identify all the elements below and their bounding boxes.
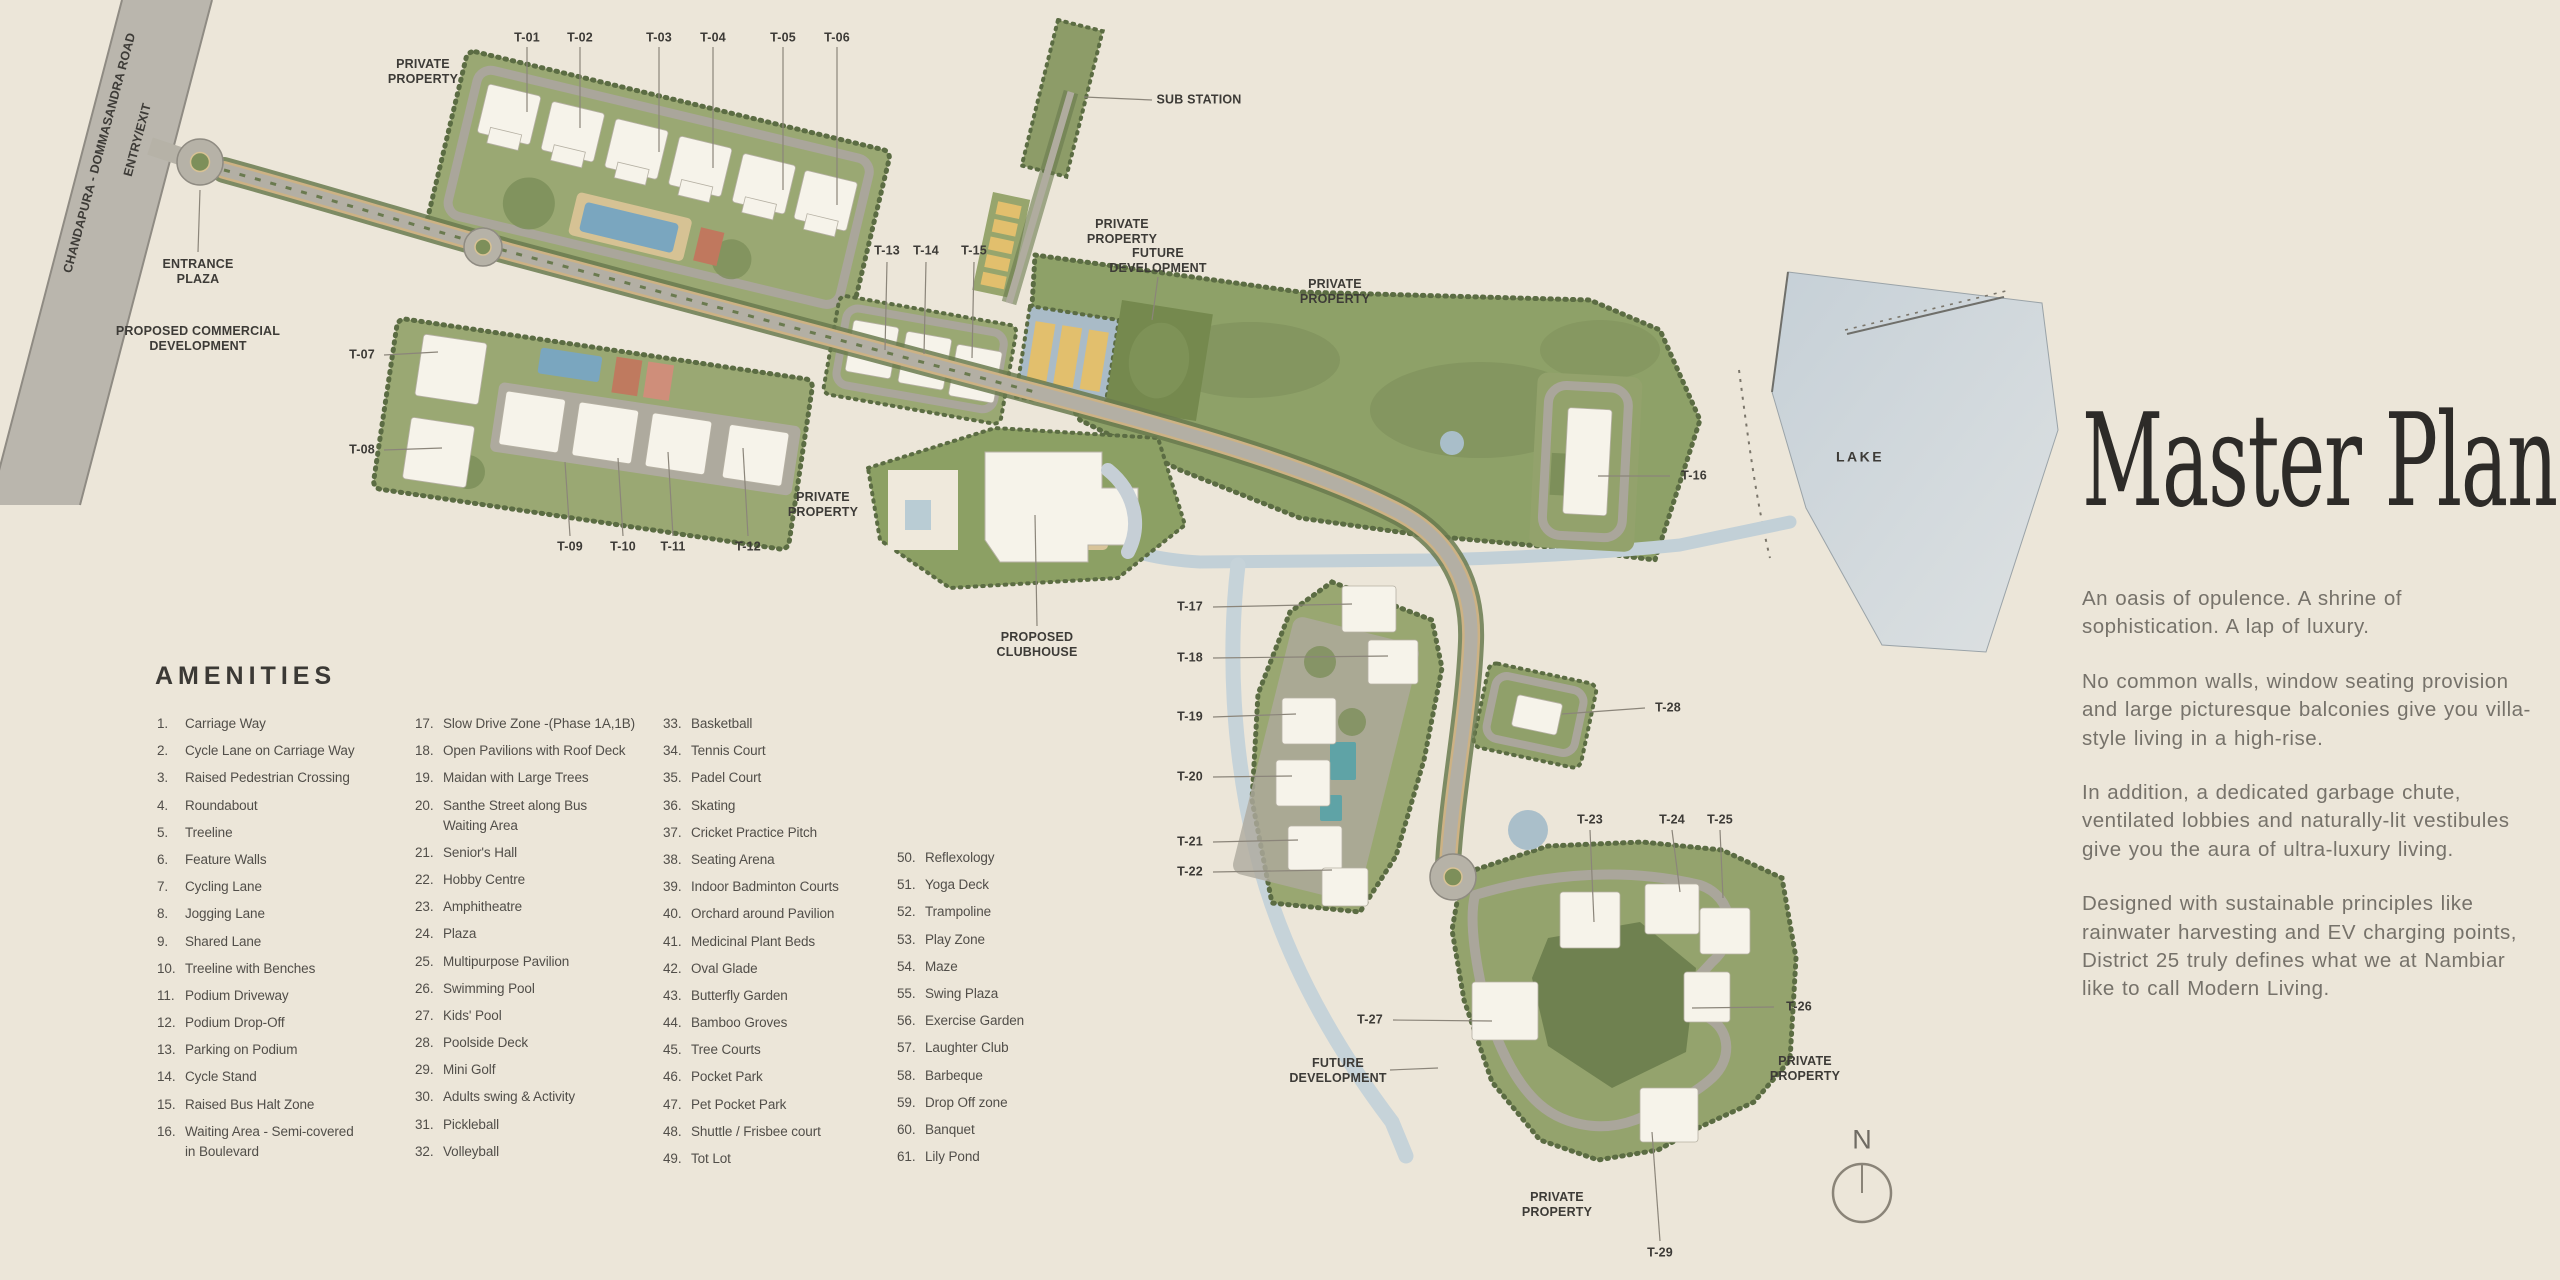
amenity-label: Senior's Hall <box>443 843 517 863</box>
amenity-number: 60. <box>897 1120 925 1140</box>
area-label-future-development-1: FUTURE DEVELOPMENT <box>1109 246 1206 277</box>
amenity-number: 34. <box>663 741 691 761</box>
amenity-item: 6.Feature Walls <box>157 850 422 870</box>
area-label-private-property-1: PRIVATE PROPERTY <box>388 57 458 88</box>
amenity-number: 10. <box>157 959 185 979</box>
amenity-number: 3. <box>157 768 185 788</box>
amenity-item: 61.Lily Pond <box>897 1147 1162 1167</box>
amenity-label: Cricket Practice Pitch <box>691 823 817 843</box>
amenity-number: 28. <box>415 1033 443 1053</box>
amenity-number: 19. <box>415 768 443 788</box>
amenity-label: Mini Golf <box>443 1060 495 1080</box>
amenity-number: 35. <box>663 768 691 788</box>
amenity-number: 15. <box>157 1095 185 1115</box>
amenity-item: 25.Multipurpose Pavilion <box>415 952 680 972</box>
amenity-label: Treeline <box>185 823 232 843</box>
amenities-column-1: 1.Carriage Way2.Cycle Lane on Carriage W… <box>157 714 422 1169</box>
amenity-item: 7.Cycling Lane <box>157 877 422 897</box>
amenity-number: 6. <box>157 850 185 870</box>
tower-label-t-23: T-23 <box>1577 812 1603 827</box>
amenity-label: Open Pavilions with Roof Deck <box>443 741 625 761</box>
amenity-label: Maidan with Large Trees <box>443 768 589 788</box>
amenity-item: 43.Butterfly Garden <box>663 986 928 1006</box>
amenity-number: 42. <box>663 959 691 979</box>
amenities-title: AMENITIES <box>155 664 336 689</box>
amenity-label: Basketball <box>691 714 752 734</box>
tower-label-t-18: T-18 <box>1177 650 1203 665</box>
tower-label-t-13: T-13 <box>874 243 900 258</box>
amenity-number: 30. <box>415 1087 443 1107</box>
amenity-item: 14.Cycle Stand <box>157 1067 422 1087</box>
amenity-item: 2.Cycle Lane on Carriage Way <box>157 741 422 761</box>
amenity-label: Medicinal Plant Beds <box>691 932 815 952</box>
amenity-item: 60.Banquet <box>897 1120 1162 1140</box>
description-paragraph-1: An oasis of opulence. A shrine of sophis… <box>2082 585 2540 642</box>
amenity-number: 32. <box>415 1142 443 1162</box>
amenity-item: 53.Play Zone <box>897 930 1162 950</box>
amenity-number: 39. <box>663 877 691 897</box>
description-paragraph-2: No common walls, window seating provisio… <box>2082 668 2540 753</box>
amenity-label: Tennis Court <box>691 741 766 761</box>
amenity-number: 13. <box>157 1040 185 1060</box>
amenity-number: 4. <box>157 796 185 816</box>
amenity-item: 26.Swimming Pool <box>415 979 680 999</box>
tower-label-t-21: T-21 <box>1177 834 1203 849</box>
amenity-label: Adults swing & Activity <box>443 1087 575 1107</box>
tower-label-t-04: T-04 <box>700 30 726 45</box>
amenity-number: 58. <box>897 1066 925 1086</box>
amenity-item: 59.Drop Off zone <box>897 1093 1162 1113</box>
page-title: Master Plan <box>2082 398 2557 526</box>
amenity-item: 35.Padel Court <box>663 768 928 788</box>
amenity-number: 33. <box>663 714 691 734</box>
amenity-label: Tree Courts <box>691 1040 761 1060</box>
amenity-item: 47.Pet Pocket Park <box>663 1095 928 1115</box>
amenity-number: 54. <box>897 957 925 977</box>
amenity-item: 24.Plaza <box>415 924 680 944</box>
tower-label-t-02: T-02 <box>567 30 593 45</box>
area-label-private-property-4: PRIVATE PROPERTY <box>788 490 858 521</box>
tower-label-t-27: T-27 <box>1357 1012 1383 1027</box>
amenity-number: 11. <box>157 986 185 1006</box>
amenity-number: 43. <box>663 986 691 1006</box>
compass-north-label: N <box>1852 1127 1872 1154</box>
amenity-item: 57.Laughter Club <box>897 1038 1162 1058</box>
tower-label-t-15: T-15 <box>961 243 987 258</box>
amenity-label: Parking on Podium <box>185 1040 297 1060</box>
tower-label-t-11: T-11 <box>660 539 685 554</box>
tower-label-t-24: T-24 <box>1659 812 1685 827</box>
amenity-item: 50.Reflexology <box>897 848 1162 868</box>
amenity-label: Seating Arena <box>691 850 775 870</box>
amenity-item: 52.Trampoline <box>897 902 1162 922</box>
amenity-item: 37.Cricket Practice Pitch <box>663 823 928 843</box>
amenity-label: Kids' Pool <box>443 1006 502 1026</box>
amenity-item: 28.Poolside Deck <box>415 1033 680 1053</box>
amenity-label: Swimming Pool <box>443 979 535 999</box>
amenity-item: 55.Swing Plaza <box>897 984 1162 1004</box>
amenity-number: 41. <box>663 932 691 952</box>
area-label-future-development-2: FUTURE DEVELOPMENT <box>1289 1056 1386 1087</box>
amenity-item: 51.Yoga Deck <box>897 875 1162 895</box>
amenity-number: 20. <box>415 796 443 836</box>
amenity-item: 58.Barbeque <box>897 1066 1162 1086</box>
amenity-label: Tot Lot <box>691 1149 731 1169</box>
amenity-label: Slow Drive Zone -(Phase 1A,1B) <box>443 714 635 734</box>
amenity-label: Feature Walls <box>185 850 266 870</box>
amenity-item: 1.Carriage Way <box>157 714 422 734</box>
amenity-number: 51. <box>897 875 925 895</box>
amenity-label: Butterfly Garden <box>691 986 788 1006</box>
amenity-number: 23. <box>415 897 443 917</box>
amenity-label: Drop Off zone <box>925 1093 1008 1113</box>
tower-label-t-01: T-01 <box>514 30 540 45</box>
amenity-item: 49.Tot Lot <box>663 1149 928 1169</box>
amenity-label: Volleyball <box>443 1142 499 1162</box>
amenity-item: 17.Slow Drive Zone -(Phase 1A,1B) <box>415 714 680 734</box>
amenity-item: 20.Santhe Street along Bus Waiting Area <box>415 796 680 836</box>
amenity-label: Multipurpose Pavilion <box>443 952 569 972</box>
amenity-label: Padel Court <box>691 768 761 788</box>
tower-label-t-16: T-16 <box>1681 468 1707 483</box>
amenity-number: 40. <box>663 904 691 924</box>
amenity-label: Reflexology <box>925 848 994 868</box>
amenity-label: Pocket Park <box>691 1067 763 1087</box>
amenity-number: 57. <box>897 1038 925 1058</box>
amenity-label: Cycle Stand <box>185 1067 257 1087</box>
amenity-number: 49. <box>663 1149 691 1169</box>
amenity-item: 4.Roundabout <box>157 796 422 816</box>
amenity-item: 46.Pocket Park <box>663 1067 928 1087</box>
amenity-item: 36.Skating <box>663 796 928 816</box>
amenity-label: Pet Pocket Park <box>691 1095 786 1115</box>
amenity-label: Play Zone <box>925 930 985 950</box>
tower-label-t-08: T-08 <box>349 442 375 457</box>
amenity-item: 39.Indoor Badminton Courts <box>663 877 928 897</box>
amenity-item: 27.Kids' Pool <box>415 1006 680 1026</box>
amenity-label: Poolside Deck <box>443 1033 528 1053</box>
amenity-label: Orchard around Pavilion <box>691 904 834 924</box>
amenity-label: Bamboo Groves <box>691 1013 787 1033</box>
tower-label-t-07: T-07 <box>349 347 375 362</box>
amenity-label: Cycle Lane on Carriage Way <box>185 741 354 761</box>
amenity-label: Banquet <box>925 1120 975 1140</box>
amenity-item: 38.Seating Arena <box>663 850 928 870</box>
description-paragraph-4: Designed with sustainable principles lik… <box>2082 890 2540 1004</box>
tower-label-t-14: T-14 <box>913 243 939 258</box>
amenities-column-2: 17.Slow Drive Zone -(Phase 1A,1B)18.Open… <box>415 714 680 1169</box>
amenity-item: 32.Volleyball <box>415 1142 680 1162</box>
amenity-label: Yoga Deck <box>925 875 989 895</box>
amenity-number: 21. <box>415 843 443 863</box>
amenity-number: 61. <box>897 1147 925 1167</box>
amenity-item: 54.Maze <box>897 957 1162 977</box>
area-label-sub-station: SUB STATION <box>1156 92 1241 107</box>
amenity-label: Swing Plaza <box>925 984 998 1004</box>
amenity-item: 23.Amphitheatre <box>415 897 680 917</box>
amenity-label: Shared Lane <box>185 932 261 952</box>
amenity-label: Exercise Garden <box>925 1011 1024 1031</box>
amenity-item: 45.Tree Courts <box>663 1040 928 1060</box>
amenity-label: Roundabout <box>185 796 258 816</box>
amenity-number: 24. <box>415 924 443 944</box>
amenity-item: 5.Treeline <box>157 823 422 843</box>
amenity-label: Raised Pedestrian Crossing <box>185 768 350 788</box>
amenity-item: 41.Medicinal Plant Beds <box>663 932 928 952</box>
tower-label-t-29: T-29 <box>1647 1245 1673 1260</box>
amenity-item: 13.Parking on Podium <box>157 1040 422 1060</box>
area-label-private-property-6: PRIVATE PROPERTY <box>1522 1190 1592 1221</box>
amenity-label: Amphitheatre <box>443 897 522 917</box>
amenity-label: Shuttle / Frisbee court <box>691 1122 821 1142</box>
amenity-item: 44.Bamboo Groves <box>663 1013 928 1033</box>
tower-label-t-03: T-03 <box>646 30 672 45</box>
amenity-label: Raised Bus Halt Zone <box>185 1095 314 1115</box>
amenity-item: 40.Orchard around Pavilion <box>663 904 928 924</box>
amenity-label: Indoor Badminton Courts <box>691 877 839 897</box>
master-plan-page: T-01T-02T-03T-04T-05T-06T-07T-08T-09T-10… <box>0 0 2560 1280</box>
amenities-column-4: 50.Reflexology51.Yoga Deck52.Trampoline5… <box>897 848 1162 1174</box>
area-label-entry-exit: ENTRY/EXIT <box>121 102 155 179</box>
tower-label-t-09: T-09 <box>557 539 583 554</box>
amenity-number: 12. <box>157 1013 185 1033</box>
amenity-number: 47. <box>663 1095 691 1115</box>
amenity-label: Podium Driveway <box>185 986 289 1006</box>
amenity-item: 10.Treeline with Benches <box>157 959 422 979</box>
amenity-label: Skating <box>691 796 735 816</box>
area-label-private-property-3: PRIVATE PROPERTY <box>1300 277 1370 308</box>
amenity-number: 52. <box>897 902 925 922</box>
amenity-number: 29. <box>415 1060 443 1080</box>
amenity-label: Podium Drop-Off <box>185 1013 285 1033</box>
amenity-item: 12.Podium Drop-Off <box>157 1013 422 1033</box>
amenity-number: 59. <box>897 1093 925 1113</box>
amenity-number: 18. <box>415 741 443 761</box>
amenity-label: Cycling Lane <box>185 877 262 897</box>
amenity-item: 18.Open Pavilions with Roof Deck <box>415 741 680 761</box>
amenity-label: Barbeque <box>925 1066 983 1086</box>
tower-label-t-05: T-05 <box>770 30 796 45</box>
amenity-item: 15.Raised Bus Halt Zone <box>157 1095 422 1115</box>
area-label-entrance-plaza: ENTRANCE PLAZA <box>162 257 233 288</box>
amenity-number: 2. <box>157 741 185 761</box>
amenity-item: 29.Mini Golf <box>415 1060 680 1080</box>
amenity-item: 34.Tennis Court <box>663 741 928 761</box>
tower-label-t-28: T-28 <box>1655 700 1681 715</box>
amenity-label: Maze <box>925 957 958 977</box>
amenity-label: Oval Glade <box>691 959 758 979</box>
amenity-label: Laughter Club <box>925 1038 1009 1058</box>
area-label-proposed-clubhouse: PROPOSED CLUBHOUSE <box>997 630 1078 661</box>
amenity-label: Santhe Street along Bus Waiting Area <box>443 796 587 836</box>
amenity-label: Hobby Centre <box>443 870 525 890</box>
amenity-item: 33.Basketball <box>663 714 928 734</box>
amenity-label: Pickleball <box>443 1115 499 1135</box>
amenity-number: 38. <box>663 850 691 870</box>
amenity-number: 37. <box>663 823 691 843</box>
amenity-item: 8.Jogging Lane <box>157 904 422 924</box>
amenity-item: 16.Waiting Area - Semi-covered in Boulev… <box>157 1122 422 1162</box>
amenity-label: Jogging Lane <box>185 904 265 924</box>
amenity-number: 46. <box>663 1067 691 1087</box>
amenity-label: Plaza <box>443 924 476 944</box>
amenity-number: 14. <box>157 1067 185 1087</box>
amenity-item: 30.Adults swing & Activity <box>415 1087 680 1107</box>
description-paragraphs: An oasis of opulence. A shrine of sophis… <box>2082 585 2540 1030</box>
amenity-item: 19.Maidan with Large Trees <box>415 768 680 788</box>
amenity-label: Trampoline <box>925 902 991 922</box>
amenity-number: 48. <box>663 1122 691 1142</box>
tower-label-t-06: T-06 <box>824 30 850 45</box>
amenity-number: 36. <box>663 796 691 816</box>
amenity-number: 31. <box>415 1115 443 1135</box>
amenity-label: Waiting Area - Semi-covered in Boulevard <box>185 1122 354 1162</box>
amenity-number: 55. <box>897 984 925 1004</box>
tower-label-t-22: T-22 <box>1177 864 1203 879</box>
amenity-number: 45. <box>663 1040 691 1060</box>
amenity-number: 25. <box>415 952 443 972</box>
amenity-number: 8. <box>157 904 185 924</box>
amenity-item: 9.Shared Lane <box>157 932 422 952</box>
area-label-private-property-5: PRIVATE PROPERTY <box>1770 1054 1840 1085</box>
area-label-proposed-commercial-development: PROPOSED COMMERCIAL DEVELOPMENT <box>116 324 280 355</box>
tower-label-t-19: T-19 <box>1177 709 1203 724</box>
amenity-label: Carriage Way <box>185 714 266 734</box>
area-label-lake: LAKE <box>1836 448 1884 465</box>
tower-label-t-10: T-10 <box>610 539 636 554</box>
amenity-number: 26. <box>415 979 443 999</box>
amenity-number: 9. <box>157 932 185 952</box>
tower-label-t-25: T-25 <box>1707 812 1733 827</box>
tower-label-t-26: T-26 <box>1786 999 1812 1014</box>
amenity-label: Treeline with Benches <box>185 959 315 979</box>
amenity-number: 53. <box>897 930 925 950</box>
amenity-number: 5. <box>157 823 185 843</box>
amenity-number: 27. <box>415 1006 443 1026</box>
amenity-number: 16. <box>157 1122 185 1162</box>
amenity-item: 21.Senior's Hall <box>415 843 680 863</box>
amenity-number: 1. <box>157 714 185 734</box>
amenity-number: 22. <box>415 870 443 890</box>
amenity-item: 11.Podium Driveway <box>157 986 422 1006</box>
tower-label-t-20: T-20 <box>1177 769 1203 784</box>
amenity-number: 56. <box>897 1011 925 1031</box>
amenity-item: 42.Oval Glade <box>663 959 928 979</box>
amenity-number: 7. <box>157 877 185 897</box>
amenity-number: 50. <box>897 848 925 868</box>
amenity-item: 48.Shuttle / Frisbee court <box>663 1122 928 1142</box>
tower-label-t-17: T-17 <box>1177 599 1203 614</box>
description-paragraph-3: In addition, a dedicated garbage chute, … <box>2082 779 2540 864</box>
amenity-item: 31.Pickleball <box>415 1115 680 1135</box>
amenity-item: 22.Hobby Centre <box>415 870 680 890</box>
tower-label-t-12: T-12 <box>735 539 761 554</box>
amenity-number: 44. <box>663 1013 691 1033</box>
amenity-item: 56.Exercise Garden <box>897 1011 1162 1031</box>
amenity-item: 3.Raised Pedestrian Crossing <box>157 768 422 788</box>
amenity-label: Lily Pond <box>925 1147 980 1167</box>
amenities-column-3: 33.Basketball34.Tennis Court35.Padel Cou… <box>663 714 928 1176</box>
amenity-number: 17. <box>415 714 443 734</box>
area-label-private-property-2: PRIVATE PROPERTY <box>1087 217 1157 248</box>
